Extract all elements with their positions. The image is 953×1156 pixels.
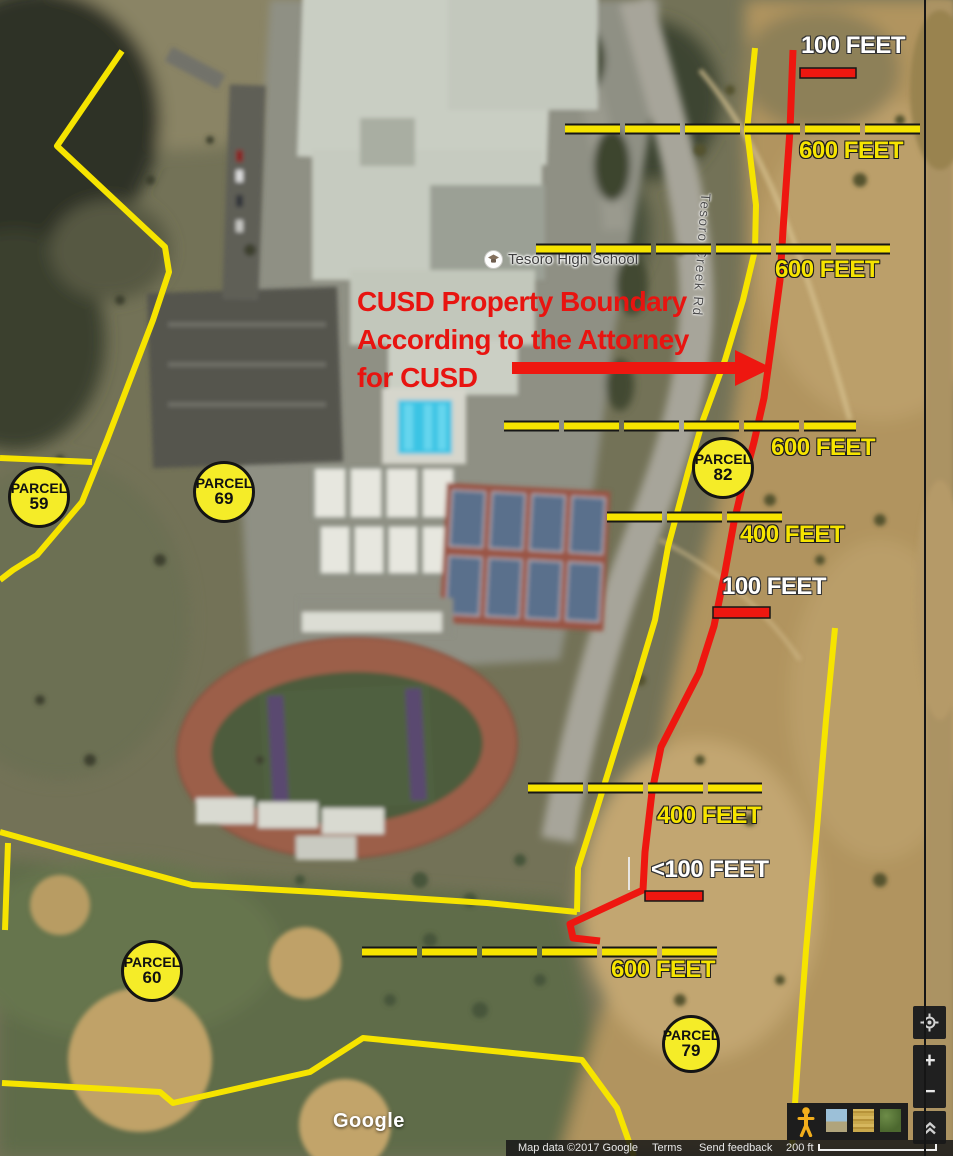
cusd-note-line2: According to the Attorney xyxy=(357,321,689,359)
my-location-button[interactable] xyxy=(913,1006,946,1039)
cusd-note-line3: for CUSD xyxy=(357,359,689,397)
parcel-word: PARCEL xyxy=(663,1028,720,1042)
scale-text[interactable]: 200 ft xyxy=(786,1142,814,1154)
imagery-thumbnail-foliage[interactable] xyxy=(880,1109,901,1132)
google-logo[interactable]: Google xyxy=(333,1110,405,1133)
distance-label: <100 FEET xyxy=(651,858,769,882)
satellite-map[interactable]: 100 FEET 600 FEET 600 FEET 600 FEET 400 … xyxy=(0,0,953,1156)
map-data-attribution: Map data ©2017 Google xyxy=(518,1142,638,1154)
red-100ft-bars xyxy=(645,68,856,901)
distance-label: 600 FEET xyxy=(775,258,879,282)
parcel-word: PARCEL xyxy=(124,955,181,969)
parcel-word: PARCEL xyxy=(695,452,752,466)
imagery-thumbnail-field[interactable] xyxy=(853,1109,874,1132)
image-seam-line xyxy=(924,0,926,1156)
imagery-thumbnail-coast[interactable] xyxy=(826,1109,847,1132)
distance-label: 100 FEET xyxy=(801,34,905,58)
distance-label: 600 FEET xyxy=(799,139,903,163)
attribution-bar: Map data ©2017 Google Terms Send feedbac… xyxy=(506,1140,953,1156)
parcel-number: 79 xyxy=(682,1042,701,1059)
scale-bar xyxy=(818,1144,937,1151)
pegman[interactable] xyxy=(797,1106,815,1137)
parcel-badge-60: PARCEL 60 xyxy=(121,940,183,1002)
parcel-word: PARCEL xyxy=(196,476,253,490)
parcel-badge-79: PARCEL 79 xyxy=(662,1015,720,1073)
distance-label: 100 FEET xyxy=(722,575,826,599)
parcel-number: 82 xyxy=(714,466,733,483)
my-location-icon xyxy=(920,1013,939,1032)
cusd-note: CUSD Property Boundary According to the … xyxy=(357,283,689,397)
parcel-badge-69: PARCEL 69 xyxy=(193,461,255,523)
parcel-number: 69 xyxy=(215,490,234,507)
send-feedback-link[interactable]: Send feedback xyxy=(699,1142,772,1154)
parcel-badge-82: PARCEL 82 xyxy=(692,437,754,499)
distance-label: 600 FEET xyxy=(611,958,715,982)
parcel-badge-59: PARCEL 59 xyxy=(8,466,70,528)
distance-label: 400 FEET xyxy=(740,523,844,547)
zoom-out-button[interactable]: − xyxy=(913,1077,946,1108)
zoom-control: + − xyxy=(913,1045,946,1108)
parcel-boundary-lines xyxy=(0,48,835,1156)
terms-link[interactable]: Terms xyxy=(652,1142,682,1154)
parcel-number: 59 xyxy=(30,495,49,512)
parcel-word: PARCEL xyxy=(11,481,68,495)
parcel-number: 60 xyxy=(143,969,162,986)
cusd-note-line1: CUSD Property Boundary xyxy=(357,283,689,321)
distance-label: 600 FEET xyxy=(771,436,875,460)
distance-label: 400 FEET xyxy=(657,804,761,828)
measure-tick xyxy=(628,857,630,890)
zoom-in-button[interactable]: + xyxy=(913,1046,946,1077)
